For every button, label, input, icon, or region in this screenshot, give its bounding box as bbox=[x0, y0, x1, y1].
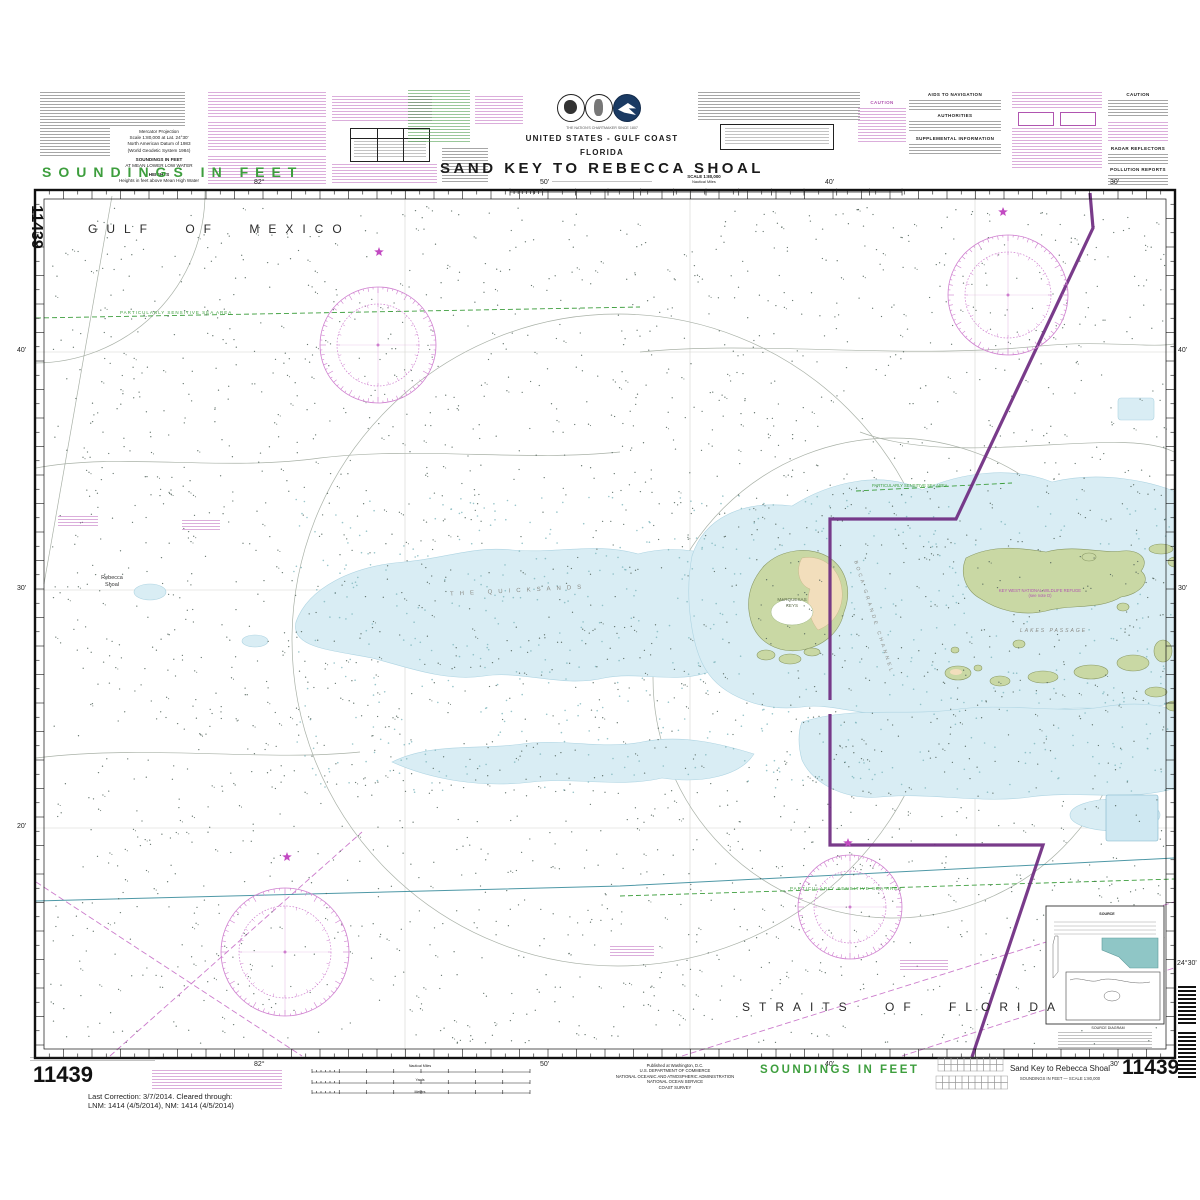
note-box bbox=[720, 124, 834, 150]
source-diagram-caption: SOURCE DIAGRAM bbox=[1068, 1026, 1148, 1030]
graticule-top-40: 40' bbox=[825, 179, 834, 186]
scalebar-label-miles: Nautical Miles bbox=[385, 1064, 455, 1068]
note-column-cautions: CAUTION RADAR REFLECTORS POLLUTION REPOR… bbox=[1106, 92, 1170, 187]
caption-title: Sand Key to Rebecca Shoal bbox=[1000, 1064, 1120, 1073]
chart-number-bottom-left: 11439 bbox=[33, 1062, 93, 1088]
label-lakes-passage: LAKES PASSAGE bbox=[1020, 628, 1087, 634]
note-block bbox=[332, 164, 437, 184]
scale-label: SCALE 1:80,000 bbox=[654, 174, 754, 179]
note-block bbox=[698, 92, 860, 120]
note-block-table bbox=[1012, 92, 1102, 168]
chart-number-left-edge: 11439 bbox=[27, 197, 45, 257]
note-caution-center: CAUTION bbox=[858, 100, 906, 142]
graticule-bottom-82: 82° bbox=[254, 1061, 265, 1068]
soundings-in-feet-bottom: SOUNDINGS IN FEET bbox=[760, 1064, 919, 1076]
graticule-right-30: 30' bbox=[1178, 585, 1187, 592]
map-note bbox=[900, 960, 948, 971]
map-note bbox=[58, 516, 98, 528]
nos-seal-icon bbox=[585, 94, 613, 122]
label-pssa-north: PARTICULARLY SENSITIVE SEA AREA bbox=[120, 310, 232, 315]
sea-label-gulf-of-mexico: GULF OF MEXICO bbox=[88, 222, 351, 236]
note-column-authorities: AIDS TO NAVIGATION AUTHORITIES SUPPLEMEN… bbox=[905, 92, 1005, 154]
note-block bbox=[442, 148, 488, 182]
barcode bbox=[1178, 986, 1196, 1026]
nautical-chart-sheet: THE NATION'S CHARTMAKER SINCE 1807 UNITE… bbox=[0, 0, 1200, 1200]
note-block bbox=[208, 122, 326, 152]
graticule-top-30: 30' bbox=[1110, 179, 1119, 186]
graticule-left-30: 30' bbox=[17, 585, 26, 592]
sea-label-straits-of-florida: STRAITS OF FLORIDA bbox=[742, 1000, 1064, 1014]
barcode bbox=[1178, 1032, 1196, 1078]
scalebar-label-meters: Meters bbox=[385, 1090, 455, 1094]
label-wildlife-refuge: KEY WEST NATIONAL WILDLIFE REFUGE(see no… bbox=[985, 588, 1095, 598]
title-footnote bbox=[552, 181, 652, 184]
caption-subtitle: SOUNDINGS IN FEET — SCALE 1:80,000 bbox=[1000, 1076, 1120, 1081]
note-block bbox=[475, 96, 523, 124]
noaa-tagline: THE NATION'S CHARTMAKER SINCE 1807 bbox=[502, 126, 702, 130]
soundings-in-feet-top: SOUNDINGS IN FEET bbox=[42, 164, 303, 180]
label-pssa-mid: PARTICULARLY SENSITIVE SEA AREA bbox=[872, 483, 948, 488]
source-diagram-title: SOURCE bbox=[1072, 912, 1142, 916]
label-marquesas-keys: MARQUESASKEYS bbox=[762, 597, 822, 608]
label-rebecca-shoal: RebeccaShoal bbox=[92, 575, 132, 588]
note-block bbox=[408, 90, 470, 144]
note-block bbox=[208, 92, 326, 118]
commerce-seal-icon bbox=[557, 94, 585, 122]
last-correction: Last Correction: 3/7/2014. Cleared throu… bbox=[88, 1092, 234, 1110]
note-block bbox=[152, 1070, 282, 1090]
graticule-left-40: 40' bbox=[17, 347, 26, 354]
chart-number-bottom-right: 11439 bbox=[1122, 1056, 1179, 1080]
noaa-logo-icon bbox=[613, 94, 641, 122]
label-pssa-south: PARTICULARLY SENSITIVE SEA AREA bbox=[790, 886, 902, 891]
chart-state: FLORIDA bbox=[482, 148, 722, 157]
graticule-left-20: 20' bbox=[17, 823, 26, 830]
chart-region: UNITED STATES - GULF COAST bbox=[482, 134, 722, 143]
graticule-top-50: 50' bbox=[540, 179, 549, 186]
map-note bbox=[610, 946, 654, 956]
scale-units-label: Nautical Miles bbox=[654, 180, 754, 184]
source-diagram-notes bbox=[1058, 1032, 1152, 1048]
graticule-right-40: 40' bbox=[1178, 347, 1187, 354]
publisher-block: Published at Washington, D.C. U.S. DEPAR… bbox=[570, 1063, 780, 1090]
map-note bbox=[182, 520, 220, 530]
graticule-bottom-50: 50' bbox=[540, 1061, 549, 1068]
edition-note bbox=[30, 1057, 155, 1061]
graticule-top-82: 82° bbox=[254, 179, 265, 186]
scalebar-label-yards: Yards bbox=[385, 1078, 455, 1082]
graticule-right-2430: 24°30' bbox=[1177, 960, 1197, 968]
